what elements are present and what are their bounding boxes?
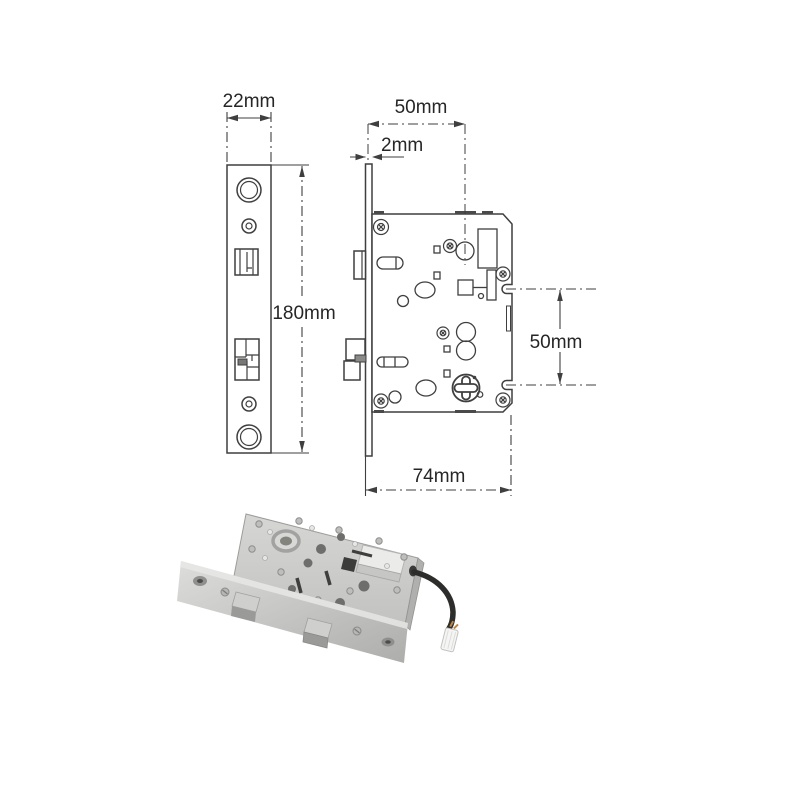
- bottom-screw-hole: [242, 397, 256, 411]
- technical-drawing-svg: 22mm 50mm 2mm 180mm 74mm 50mm: [0, 0, 800, 800]
- lock-dimension-diagram: 22mm 50mm 2mm 180mm 74mm 50mm: [0, 0, 800, 800]
- side-view-lock-body: [344, 164, 512, 456]
- deadbolt-side: [344, 339, 366, 380]
- label-fixing-hole-spacing: 50mm: [530, 332, 583, 353]
- lock-case-outline: [372, 214, 512, 412]
- latch-bolt-side: [354, 251, 366, 279]
- label-backset: 50mm: [395, 97, 448, 118]
- product-photo: [177, 514, 460, 663]
- label-body-width: 74mm: [413, 466, 466, 487]
- dim-backset: [368, 121, 465, 127]
- front-view-faceplate: [227, 165, 271, 453]
- dim-faceplate-width: [227, 112, 271, 163]
- deadbolt-cutout: [235, 339, 259, 380]
- faceplate-outline: [227, 165, 271, 453]
- faceplate-edge: [366, 164, 373, 456]
- label-faceplate-height: 180mm: [272, 303, 335, 324]
- latch-cutout: [235, 249, 258, 275]
- label-faceplate-width: 22mm: [223, 91, 276, 112]
- photo-connector: [441, 620, 461, 652]
- label-faceplate-thickness: 2mm: [381, 135, 423, 156]
- top-screw-hole: [242, 219, 256, 233]
